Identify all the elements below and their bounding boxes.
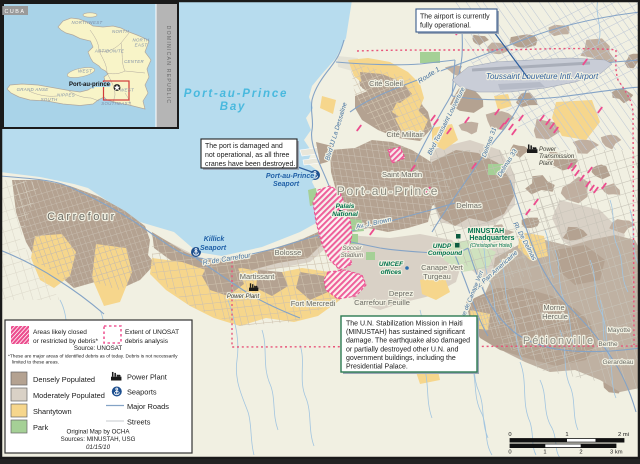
svg-text:or partially destroyed other U: or partially destroyed other U.N. and: [346, 346, 459, 353]
svg-text:Shantytown: Shantytown: [33, 407, 72, 416]
svg-text:Pétionville: Pétionville: [523, 335, 595, 347]
svg-text:*These are major areas of iden: *These are major areas of identified deb…: [8, 354, 178, 360]
svg-text:1: 1: [543, 450, 546, 456]
svg-text:Cité Soleil: Cité Soleil: [369, 79, 403, 88]
svg-text:(Christopher Hotel): (Christopher Hotel): [470, 243, 513, 249]
svg-text:Park: Park: [33, 423, 49, 432]
svg-text:Power Plant: Power Plant: [127, 373, 167, 382]
svg-text:CENTER: CENTER: [124, 59, 144, 64]
svg-text:Plant: Plant: [539, 161, 553, 167]
svg-text:not operational, as all three: not operational, as all three: [205, 152, 290, 159]
svg-text:Port-au-Prince: Port-au-Prince: [184, 88, 288, 100]
svg-text:Mayotte: Mayotte: [607, 327, 631, 334]
svg-text:(MINUSTAH) has sustained signi: (MINUSTAH) has sustained significant: [346, 329, 465, 336]
svg-text:offices: offices: [381, 269, 402, 276]
svg-text:UNICEF: UNICEF: [379, 261, 404, 268]
svg-text:CUBA: CUBA: [5, 9, 26, 15]
svg-text:DOMINICAN REPUBLIC: DOMINICAN REPUBLIC: [165, 26, 171, 105]
svg-text:Carrefour: Carrefour: [47, 211, 117, 223]
svg-text:MINUSTAH: MINUSTAH: [468, 228, 504, 235]
svg-text:debris analysis: debris analysis: [125, 338, 169, 345]
svg-text:WEST: WEST: [78, 69, 92, 74]
svg-text:Deprez: Deprez: [389, 289, 413, 298]
svg-text:ARTIBONITE: ARTIBONITE: [94, 49, 124, 54]
svg-text:Power: Power: [539, 147, 557, 153]
svg-text:Compound: Compound: [428, 250, 463, 257]
svg-text:2 mi: 2 mi: [618, 432, 629, 438]
svg-text:NORTHWEST: NORTHWEST: [72, 20, 103, 25]
svg-text:EAST: EAST: [135, 43, 148, 48]
svg-text:Seaports: Seaports: [127, 388, 157, 397]
svg-text:fully operational.: fully operational.: [420, 23, 471, 30]
svg-text:UNDP: UNDP: [433, 243, 452, 250]
svg-text:Bolosse: Bolosse: [275, 248, 302, 257]
svg-text:Port-au-Prince: Port-au-Prince: [266, 173, 314, 180]
svg-text:damage. The earthquake also d: damage. The earthquake also damaged: [346, 338, 470, 345]
svg-text:Source: UNOSAT: Source: UNOSAT: [74, 345, 123, 352]
svg-text:Canape Vert: Canape Vert: [421, 263, 464, 272]
svg-text:Streets: Streets: [127, 418, 151, 427]
svg-text:1: 1: [565, 432, 568, 438]
svg-text:Delmas: Delmas: [456, 201, 482, 210]
svg-text:The airport is currently: The airport is currently: [420, 14, 490, 21]
svg-text:SOUTH: SOUTH: [41, 97, 58, 102]
svg-text:Gerardeau: Gerardeau: [602, 359, 633, 366]
svg-text:Hercule: Hercule: [542, 312, 568, 321]
svg-text:GRAND ANSE: GRAND ANSE: [17, 87, 49, 92]
svg-text:Toussaint Louveture Intl. Airp: Toussaint Louveture Intl. Airport: [486, 72, 599, 81]
svg-text:The U.N. Stabilization Mission: The U.N. Stabilization Mission in Haiti: [346, 321, 463, 328]
svg-text:2: 2: [579, 450, 582, 456]
svg-text:NORTH: NORTH: [112, 29, 130, 34]
svg-text:Moderately Populated: Moderately Populated: [33, 391, 105, 400]
svg-text:Carrefour Feuille: Carrefour Feuille: [354, 298, 410, 307]
svg-text:NIPPES: NIPPES: [57, 93, 75, 98]
svg-text:Transmission: Transmission: [539, 154, 575, 160]
svg-text:Densely Populated: Densely Populated: [33, 375, 95, 384]
svg-text:Martissant: Martissant: [240, 272, 276, 281]
svg-text:Headquarters: Headquarters: [469, 235, 514, 242]
svg-text:Port-au-prince: Port-au-prince: [69, 82, 111, 88]
svg-text:Saint Martin: Saint Martin: [382, 170, 422, 179]
svg-text:Killick: Killick: [204, 236, 226, 243]
svg-text:The port is damaged and: The port is damaged and: [205, 143, 283, 150]
svg-text:Bay: Bay: [220, 101, 247, 113]
svg-text:Sources: MINUSTAH, USG: Sources: MINUSTAH, USG: [61, 436, 136, 443]
svg-text:Areas likely closed: Areas likely closed: [33, 329, 87, 336]
svg-text:Morne: Morne: [543, 303, 564, 312]
svg-text:Turgeau: Turgeau: [423, 272, 451, 281]
svg-text:Presidential Palace.: Presidential Palace.: [346, 364, 408, 371]
svg-text:Port-au-Prince: Port-au-Prince: [337, 184, 440, 198]
svg-text:3 km: 3 km: [610, 450, 623, 456]
svg-text:01/15/10: 01/15/10: [86, 444, 111, 451]
svg-text:Original Map by OCHA: Original Map by OCHA: [67, 429, 131, 436]
svg-text:Stadium: Stadium: [341, 252, 364, 259]
svg-text:Extent of UNOSAT: Extent of UNOSAT: [125, 329, 179, 336]
svg-text:Fort Mercredi: Fort Mercredi: [291, 299, 336, 308]
svg-text:government buildings, includin: government buildings, including the: [346, 355, 456, 362]
svg-text:WEST: WEST: [120, 88, 134, 93]
svg-text:0: 0: [508, 432, 511, 438]
svg-text:Cité Militair: Cité Militair: [386, 130, 424, 139]
svg-text:Major Roads: Major Roads: [127, 402, 169, 411]
svg-text:National: National: [332, 211, 358, 218]
svg-text:Seaport: Seaport: [200, 245, 227, 252]
svg-text:Berthe: Berthe: [598, 341, 618, 348]
svg-text:SOUTHEAST: SOUTHEAST: [101, 101, 131, 106]
svg-text:Soccer: Soccer: [342, 245, 362, 252]
svg-text:or restricted by debris*: or restricted by debris*: [33, 338, 98, 345]
svg-text:limited to these areas.: limited to these areas.: [12, 360, 59, 366]
svg-text:0: 0: [508, 450, 511, 456]
svg-text:Palais: Palais: [336, 203, 355, 210]
svg-text:cranes have been destroyed.: cranes have been destroyed.: [205, 161, 295, 168]
svg-text:Power Plant: Power Plant: [227, 294, 260, 300]
svg-text:Seaport: Seaport: [273, 181, 300, 188]
